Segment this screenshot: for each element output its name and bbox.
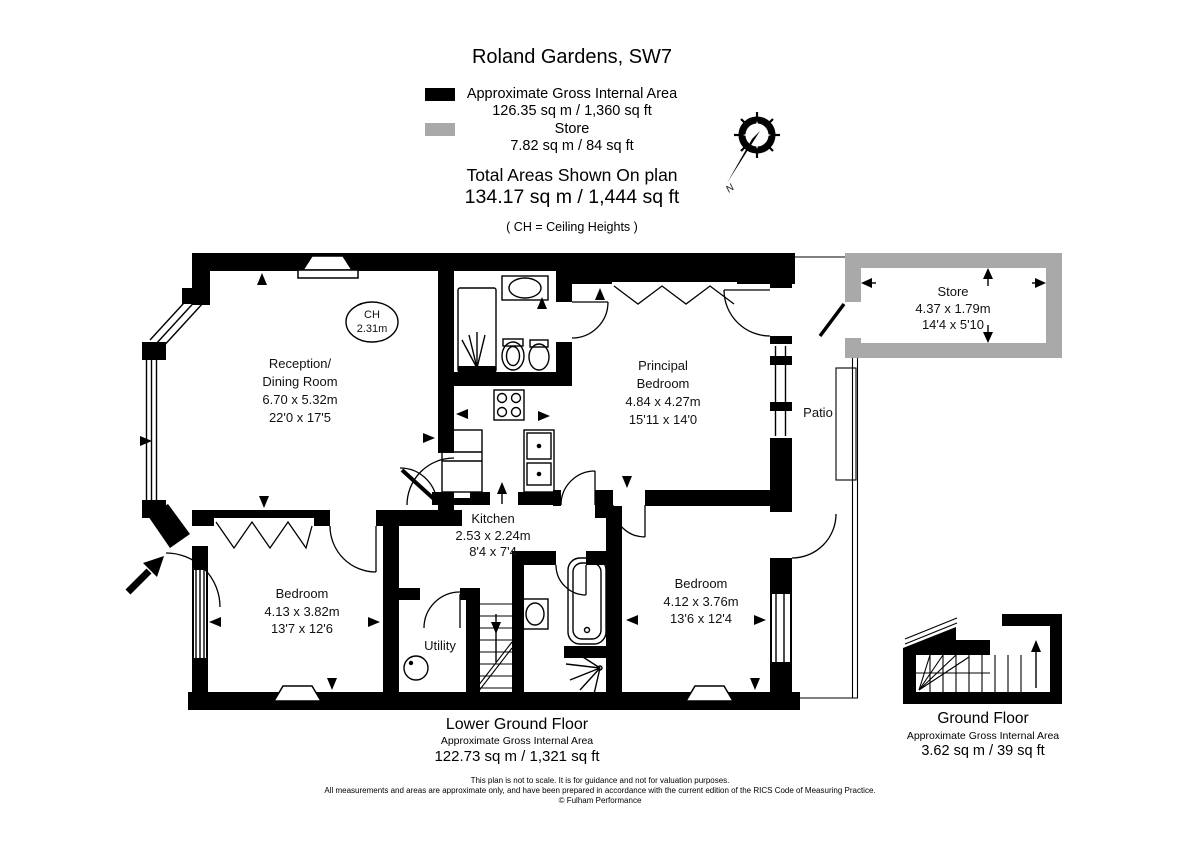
compass-rose-icon: N <box>724 112 780 195</box>
bidet-icon <box>529 344 549 370</box>
bedroom-left-imperial: 13'7 x 12'6 <box>271 621 333 636</box>
bedroom-left-name: Bedroom <box>276 586 329 601</box>
ground-floor-name: Ground Floor <box>783 710 1183 728</box>
bathroom-fixtures <box>522 558 606 694</box>
ch-value: 2.31m <box>357 323 388 335</box>
store-name: Store <box>937 284 968 299</box>
bedroom-right-name: Bedroom <box>675 576 728 591</box>
ground-floor-sub: Approximate Gross Internal Area <box>783 730 1183 742</box>
washer-icon <box>404 656 428 680</box>
entrance-arrow-icon <box>128 556 164 592</box>
shower-room-fixtures <box>458 276 549 372</box>
disclaimer-line1: This plan is not to scale. It is for gui… <box>300 776 900 785</box>
floorplan-page: Roland Gardens, SW7 Approximate Gross In… <box>0 0 1200 848</box>
principal-imperial: 15'11 x 14'0 <box>629 412 697 427</box>
reception-metric: 6.70 x 5.32m <box>262 392 337 407</box>
store-metric: 4.37 x 1.79m <box>915 301 990 316</box>
ground-floor-stairs <box>903 614 1062 704</box>
ground-floor-area: 3.62 sq m / 39 sq ft <box>783 743 1183 759</box>
basin-icon <box>526 603 544 625</box>
lower-floor-name: Lower Ground Floor <box>317 716 717 734</box>
utility-fixtures <box>404 656 428 680</box>
disclaimer-line3: © Fulham Performance <box>300 796 900 805</box>
principal-name1: Principal <box>638 358 688 373</box>
compass-north-label: N <box>724 182 737 196</box>
lower-floor-area: 122.73 sq m / 1,321 sq ft <box>317 748 717 765</box>
lower-floor-sub: Approximate Gross Internal Area <box>317 735 717 747</box>
store-imperial: 14'4 x 5'10 <box>922 317 984 332</box>
reception-name2: Dining Room <box>262 374 337 389</box>
bedroom-right-metric: 4.12 x 3.76m <box>663 594 738 609</box>
principal-metric: 4.84 x 4.27m <box>625 394 700 409</box>
kitchen-name: Kitchen <box>471 511 514 526</box>
doors <box>166 290 836 628</box>
ceiling-height-badge: CH 2.31m <box>346 302 398 342</box>
walls <box>142 253 800 710</box>
principal-name2: Bedroom <box>637 376 690 391</box>
kitchen-metric: 2.53 x 2.24m <box>455 528 530 543</box>
bedroom-left-metric: 4.13 x 3.82m <box>264 604 339 619</box>
patio-name: Patio <box>803 405 833 420</box>
ch-label: CH <box>364 309 380 321</box>
stairs-lower <box>478 604 512 692</box>
reception-name1: Reception/ <box>269 356 332 371</box>
disclaimer-line2: All measurements and areas are approxima… <box>200 786 1000 795</box>
bedroom-right-imperial: 13'6 x 12'4 <box>670 611 732 626</box>
kitchen-imperial: 8'4 x 7'4 <box>469 544 517 559</box>
reception-imperial: 22'0 x 17'5 <box>269 410 331 425</box>
utility-name: Utility <box>424 638 456 653</box>
chimney-breasts <box>274 256 733 701</box>
